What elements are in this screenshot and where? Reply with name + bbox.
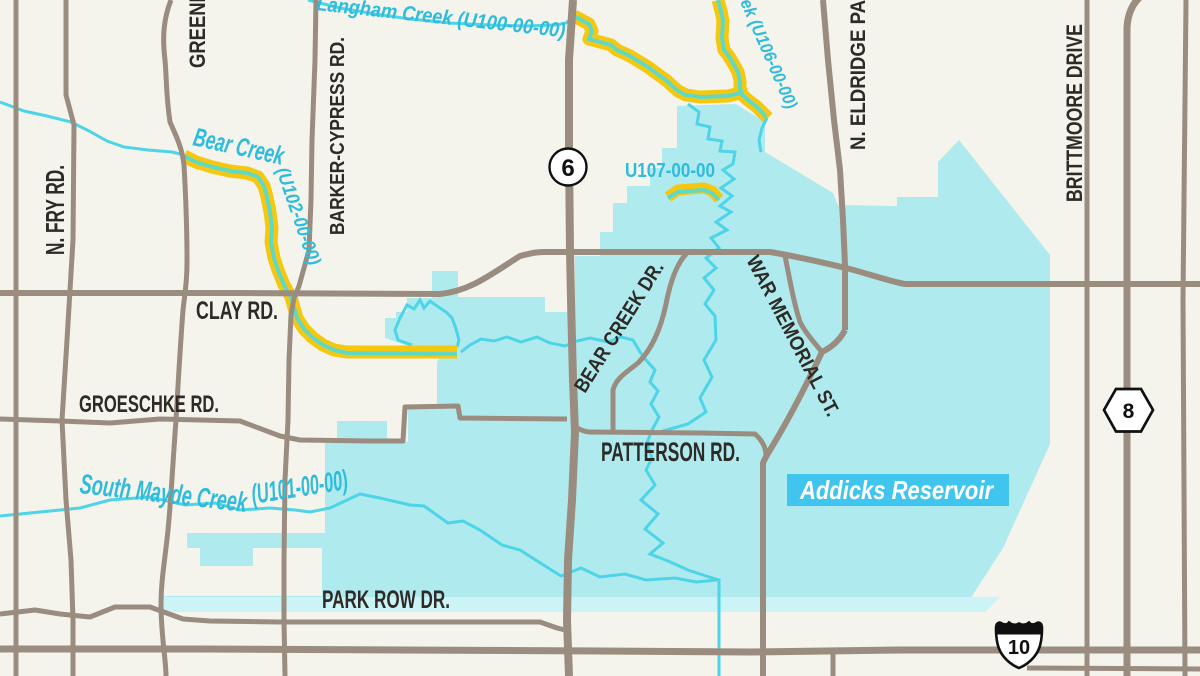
svg-text:N. ELDRIDGE PARKWAY: N. ELDRIDGE PARKWAY <box>846 0 870 150</box>
svg-text:PARK ROW DR.: PARK ROW DR. <box>322 586 450 614</box>
svg-text:GREENHOUSE RD.: GREENHOUSE RD. <box>185 0 210 68</box>
svg-text:6: 6 <box>561 155 574 182</box>
svg-text:Addicks Reservoir: Addicks Reservoir <box>799 475 994 505</box>
svg-text:8: 8 <box>1123 400 1135 423</box>
svg-text:PATTERSON RD.: PATTERSON RD. <box>601 437 740 467</box>
svg-text:U107-00-00: U107-00-00 <box>625 160 715 182</box>
svg-text:BARKER-CYPRESS RD.: BARKER-CYPRESS RD. <box>326 37 349 235</box>
svg-text:N. FRY RD.: N. FRY RD. <box>40 165 70 255</box>
svg-text:BRITTMOORE DRIVE: BRITTMOORE DRIVE <box>1062 24 1087 202</box>
svg-text:GROESCHKE RD.: GROESCHKE RD. <box>79 391 219 418</box>
svg-text:CLAY RD.: CLAY RD. <box>196 297 278 325</box>
svg-text:10: 10 <box>1008 637 1030 659</box>
